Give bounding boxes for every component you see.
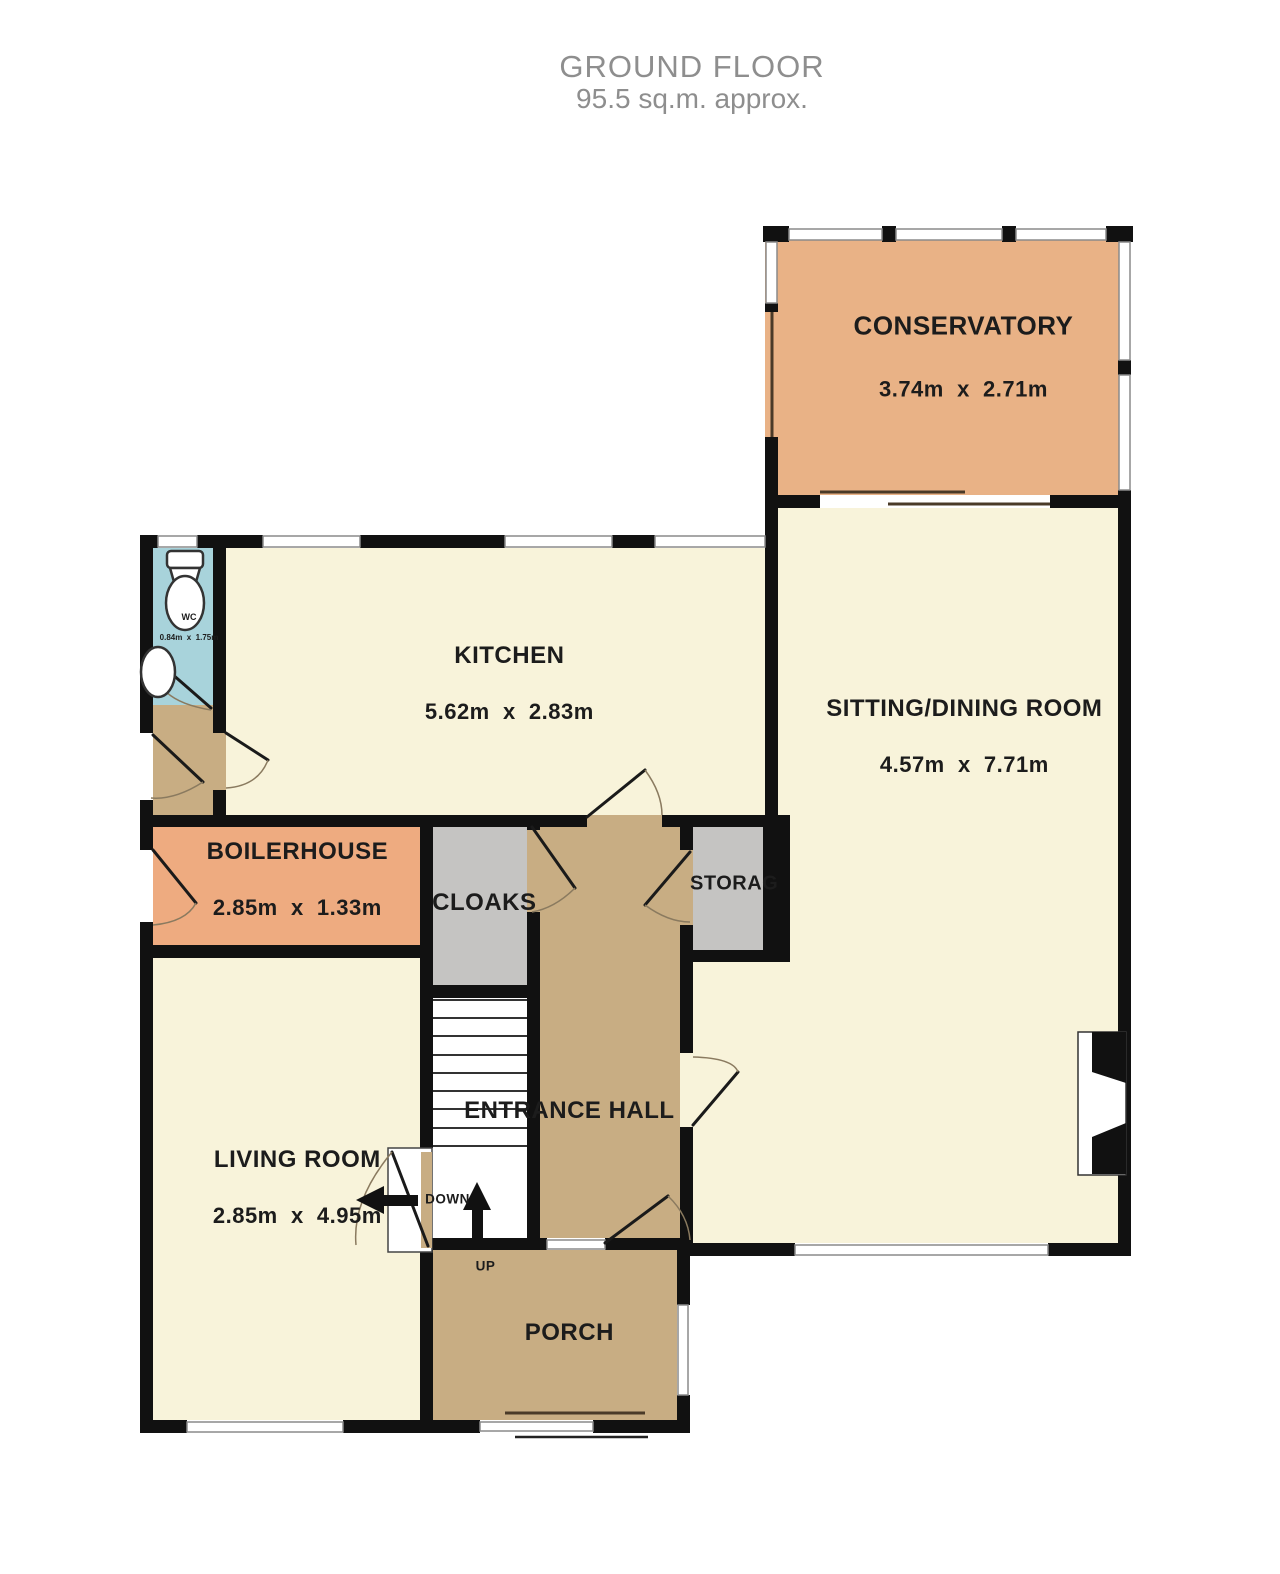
entrance-hall-name: ENTRANCE HALL (464, 1097, 675, 1124)
toilet-cistern (167, 551, 203, 568)
boilerhouse-dims: 2.85m x 1.33m (213, 895, 382, 920)
wc-name: WC (182, 612, 197, 622)
label-living-room: LIVING ROOM 2.85m x 4.95m (184, 1118, 382, 1258)
cloaks-name: CLOAKS (432, 889, 536, 916)
label-conservatory: CONSERVATORY 3.74m x 2.71m (823, 280, 1074, 435)
wc-dims: 0.84m x 1.75m (160, 633, 219, 642)
label-wc: WC 0.84m x 1.75m (150, 602, 219, 652)
label-sitting-dining: SITTING/DINING ROOM 4.57m x 7.71m (798, 667, 1103, 807)
sitting-dims: 4.57m x 7.71m (880, 752, 1049, 777)
label-down: DOWN (408, 1177, 470, 1222)
kitchen-dims: 5.62m x 2.83m (425, 699, 594, 724)
conservatory-dims: 3.74m x 2.71m (879, 377, 1048, 402)
floor-plan: GROUND FLOOR 95.5 sq.m. approx. (0, 0, 1280, 1574)
fireplace (1078, 1032, 1126, 1175)
sitting-name: SITTING/DINING ROOM (826, 695, 1102, 722)
label-storage: STORAG (666, 850, 778, 919)
living-dims: 2.85m x 4.95m (213, 1203, 382, 1228)
up-text: UP (476, 1259, 496, 1274)
label-boilerhouse: BOILERHOUSE 2.85m x 1.33m (178, 810, 388, 950)
kitchen-name: KITCHEN (454, 642, 564, 669)
conservatory-name: CONSERVATORY (854, 311, 1074, 341)
label-entrance-hall: ENTRANCE HALL (435, 1069, 674, 1153)
living-name: LIVING ROOM (214, 1146, 381, 1173)
wash-basin (141, 647, 175, 697)
label-porch: PORCH (496, 1291, 614, 1375)
porch-name: PORCH (525, 1319, 614, 1346)
label-up: UP (459, 1244, 496, 1289)
label-cloaks: CLOAKS (403, 861, 536, 945)
down-text: DOWN (425, 1192, 470, 1207)
boilerhouse-name: BOILERHOUSE (207, 838, 389, 865)
label-kitchen: KITCHEN 5.62m x 2.83m (396, 614, 594, 754)
storage-name: STORAG (690, 873, 778, 895)
